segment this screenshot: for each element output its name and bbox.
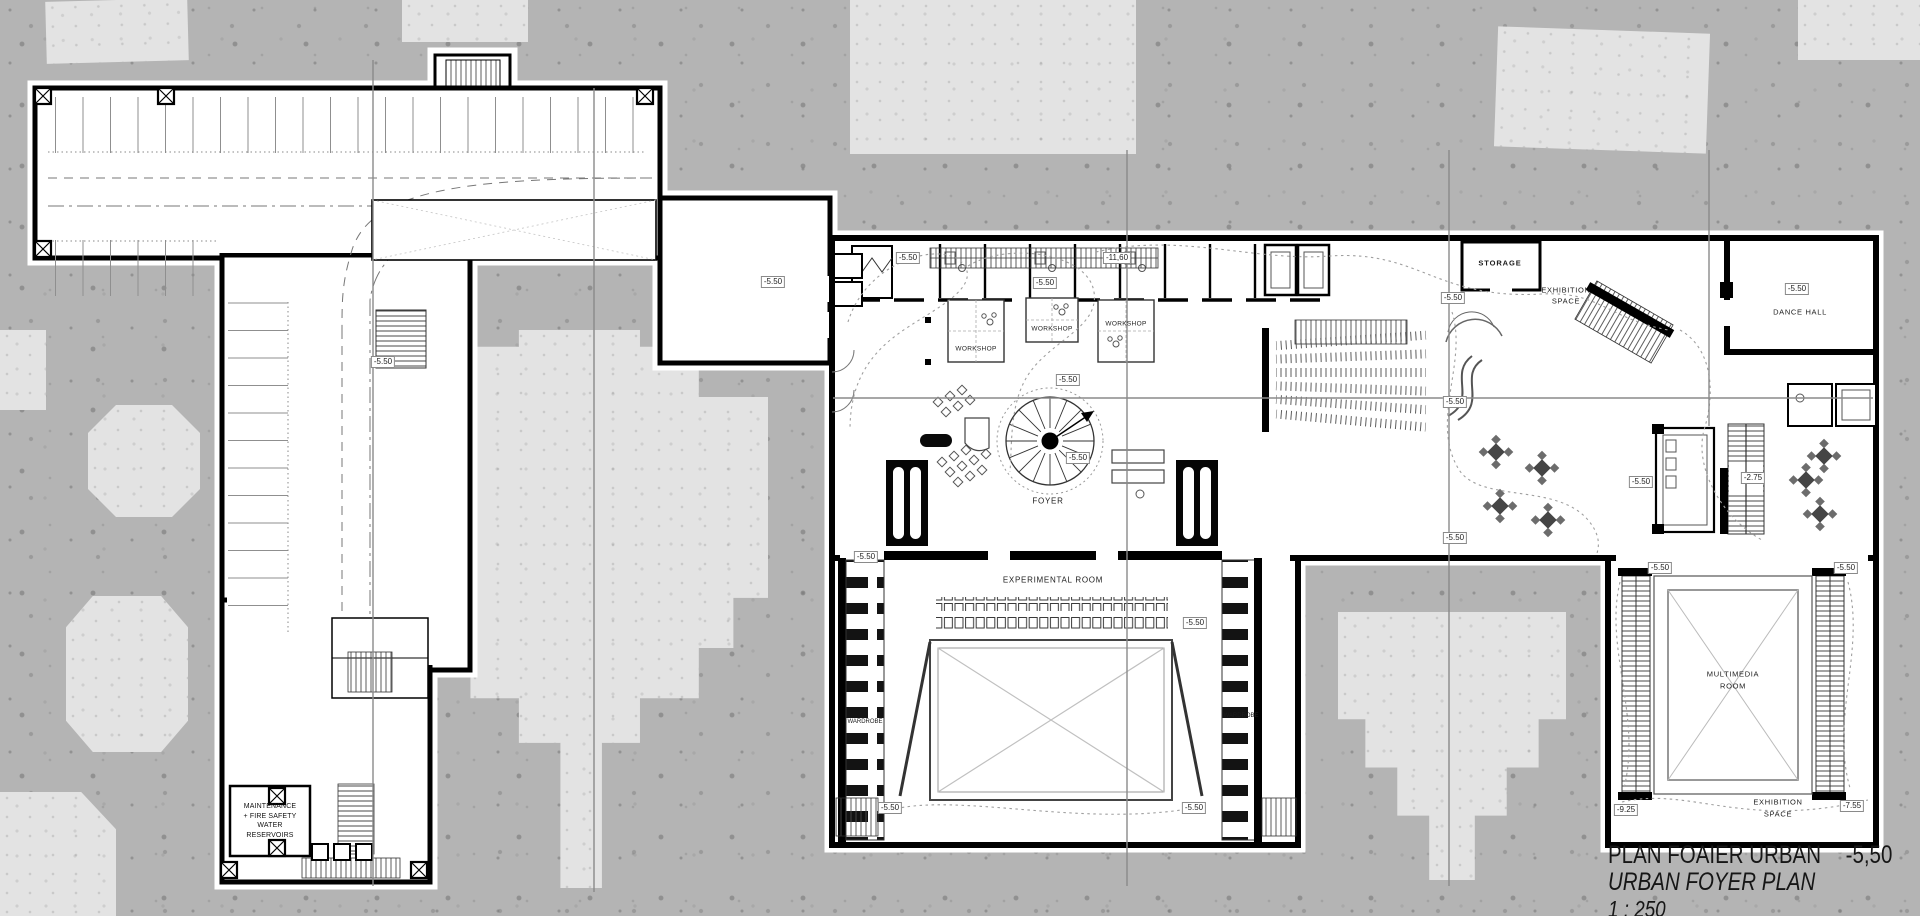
site-plan-canvas: STORAGE EXHIBITION SPACE DANCE HALL WORK… xyxy=(0,0,1920,916)
plan-linework xyxy=(0,0,1920,916)
